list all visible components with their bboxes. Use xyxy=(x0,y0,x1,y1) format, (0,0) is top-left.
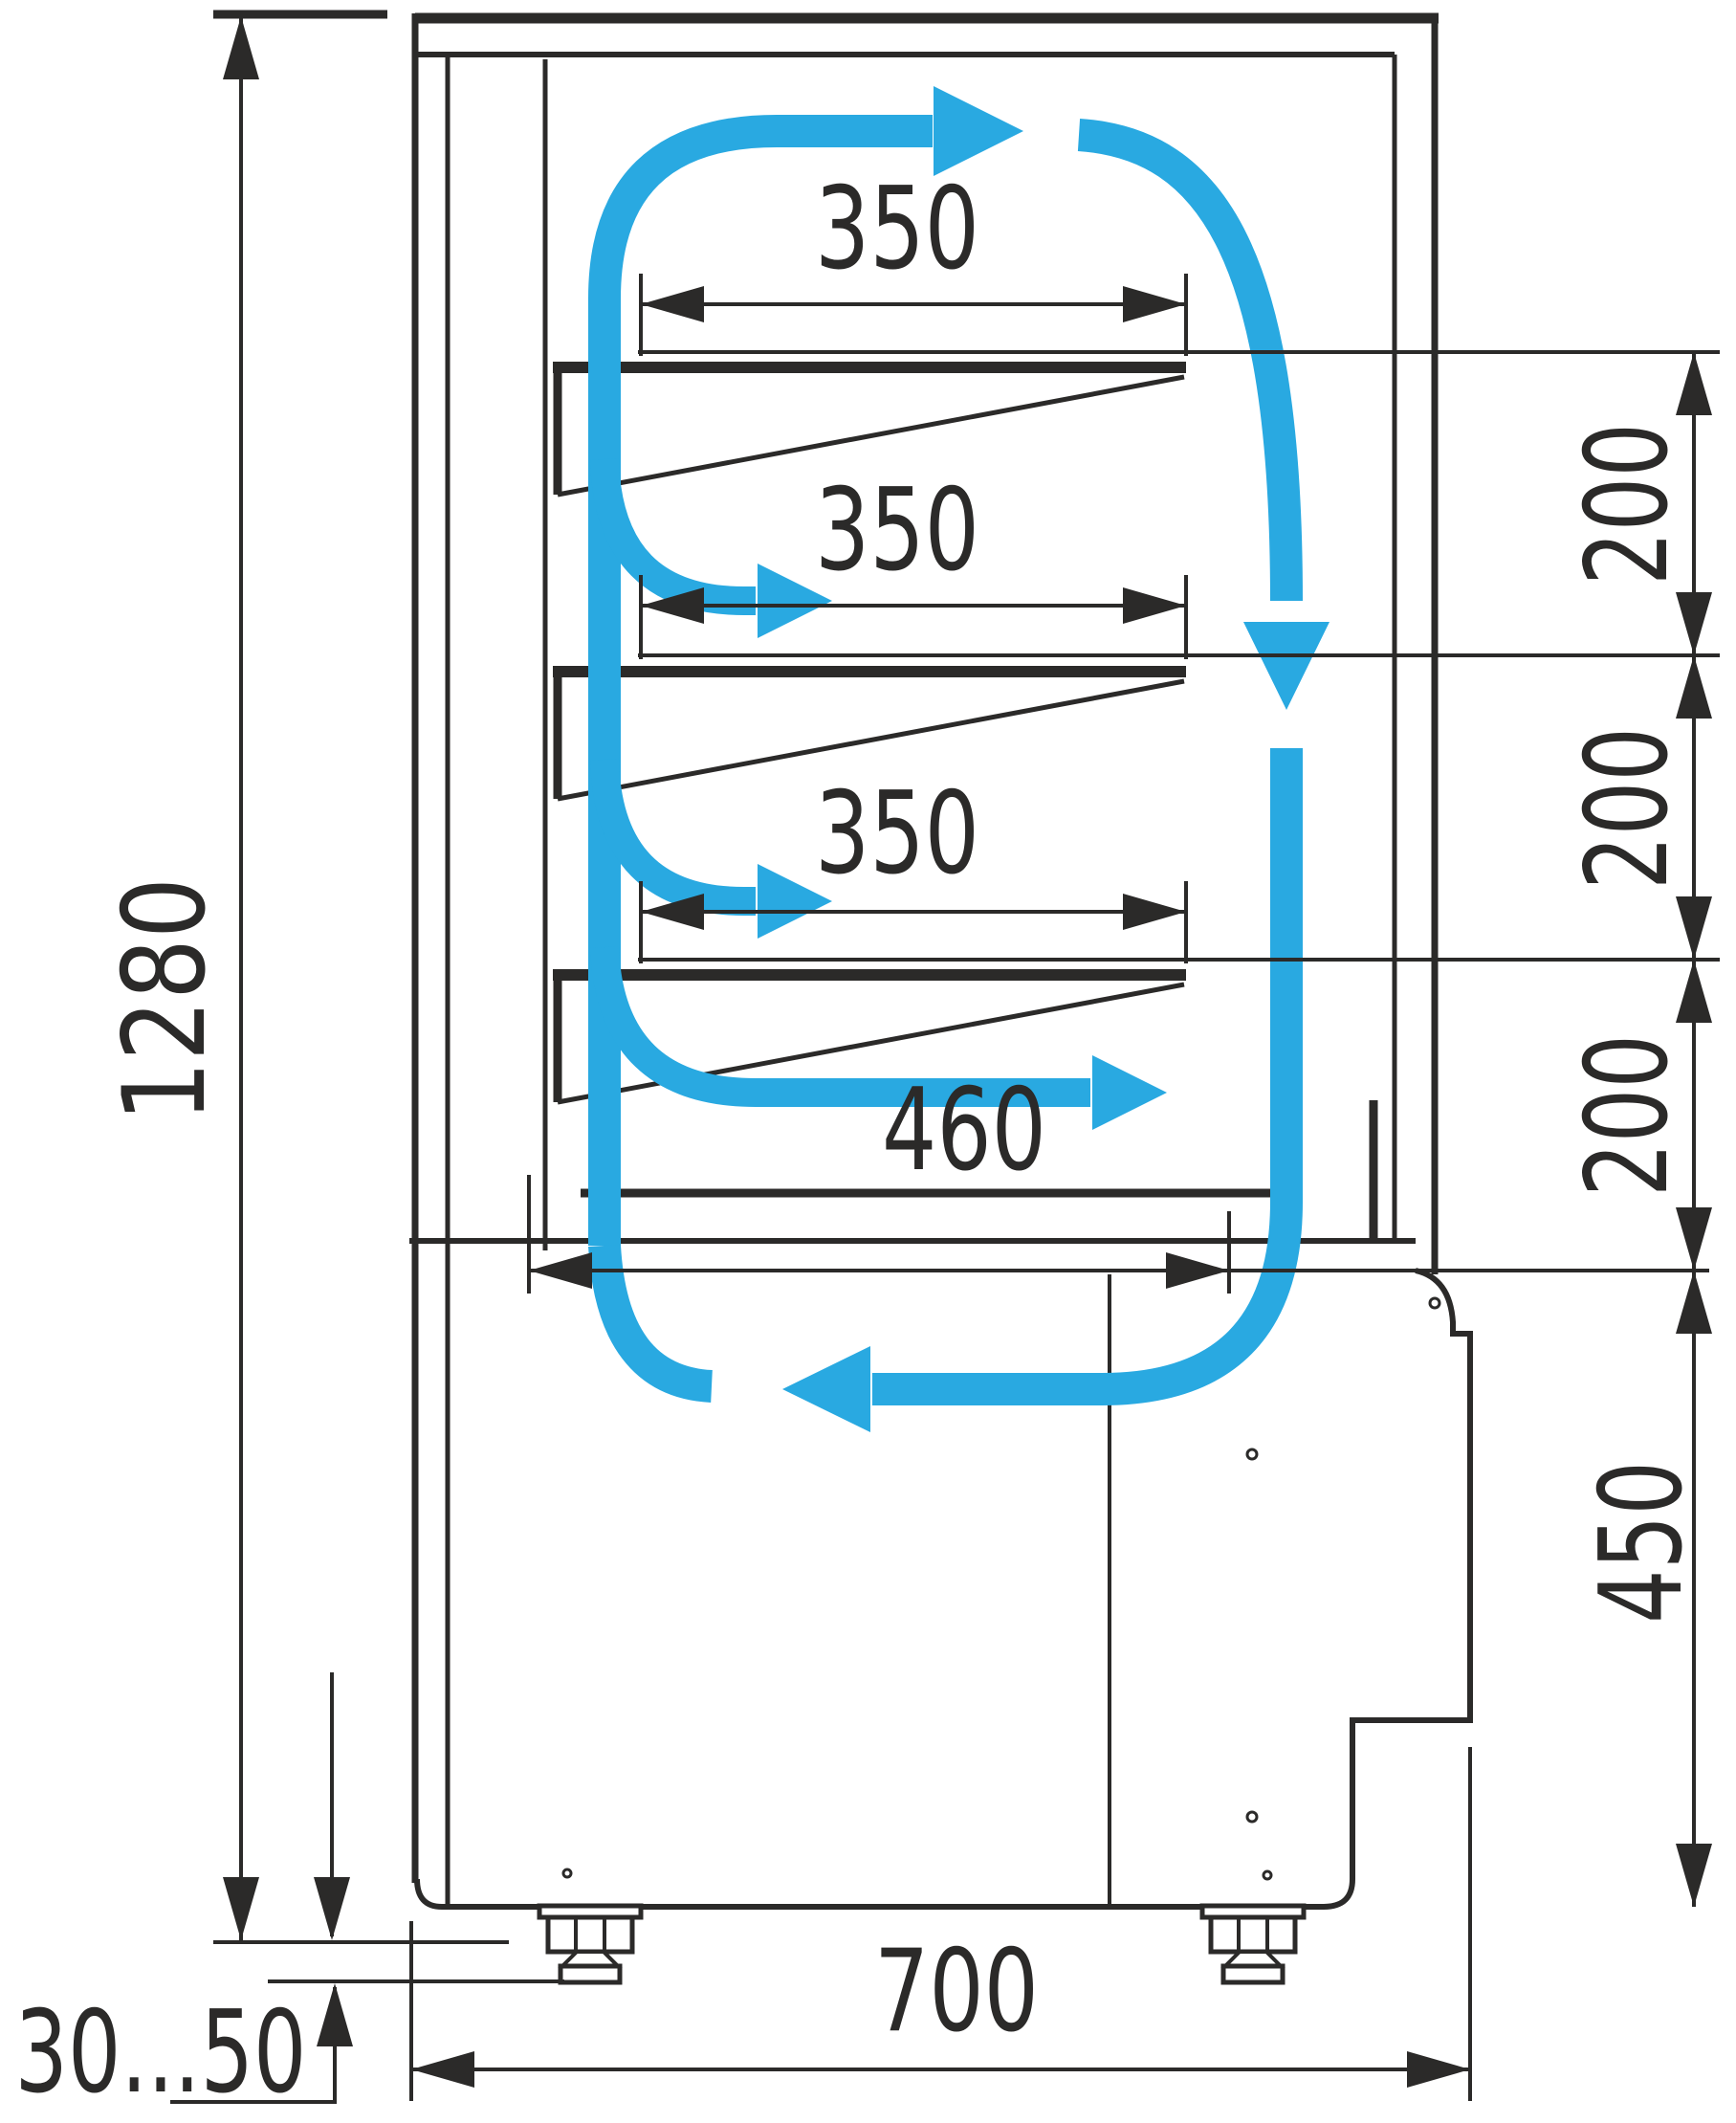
base-height-label: 450 xyxy=(1576,1461,1708,1624)
airflow-arrow-right-icon xyxy=(1092,1055,1167,1130)
airflow-arrow-right-icon xyxy=(934,86,1023,176)
dimension-labels: 350 350 350 460 700 1280 200 200 200 450… xyxy=(15,164,1709,2119)
cabinet-structure xyxy=(409,13,1470,1982)
overall-height-label: 1280 xyxy=(99,877,231,1122)
airflow-branch-shelf3 xyxy=(604,760,756,901)
shelf3-width-label: 350 xyxy=(815,768,979,900)
gap1-label: 200 xyxy=(1562,423,1694,586)
deck-width-label: 460 xyxy=(882,1065,1046,1197)
shelf1-width-label: 350 xyxy=(815,164,979,296)
airflow-arrow-down-icon xyxy=(1243,622,1329,710)
airflow-arrow-left-icon xyxy=(782,1346,870,1432)
machine-compartment-profile xyxy=(417,1271,1470,1907)
gap3-label: 200 xyxy=(1562,1034,1694,1197)
depth-label: 700 xyxy=(874,1926,1039,2058)
screw-hole-icon xyxy=(1247,1812,1257,1822)
adjustable-foot-front xyxy=(1202,1906,1304,1982)
screw-hole-icon xyxy=(563,1869,571,1877)
gap2-label: 200 xyxy=(1562,727,1694,890)
adjustable-foot-rear xyxy=(539,1906,641,1982)
screw-hole-icon xyxy=(1430,1298,1439,1308)
technical-drawing-page: 350 350 350 460 700 1280 200 200 200 450… xyxy=(0,0,1736,2123)
display-case-side-section-diagram: 350 350 350 460 700 1280 200 200 200 450… xyxy=(0,0,1736,2123)
feet-range-label: 30...50 xyxy=(15,1987,307,2119)
shelf2-width-label: 350 xyxy=(815,465,979,597)
screw-hole-icon xyxy=(1264,1871,1271,1879)
screw-hole-icon xyxy=(1247,1449,1257,1459)
dimensions xyxy=(170,14,1720,2102)
dim-overall-height xyxy=(213,14,564,1981)
airflow-bottom-left-corner xyxy=(604,1246,712,1386)
